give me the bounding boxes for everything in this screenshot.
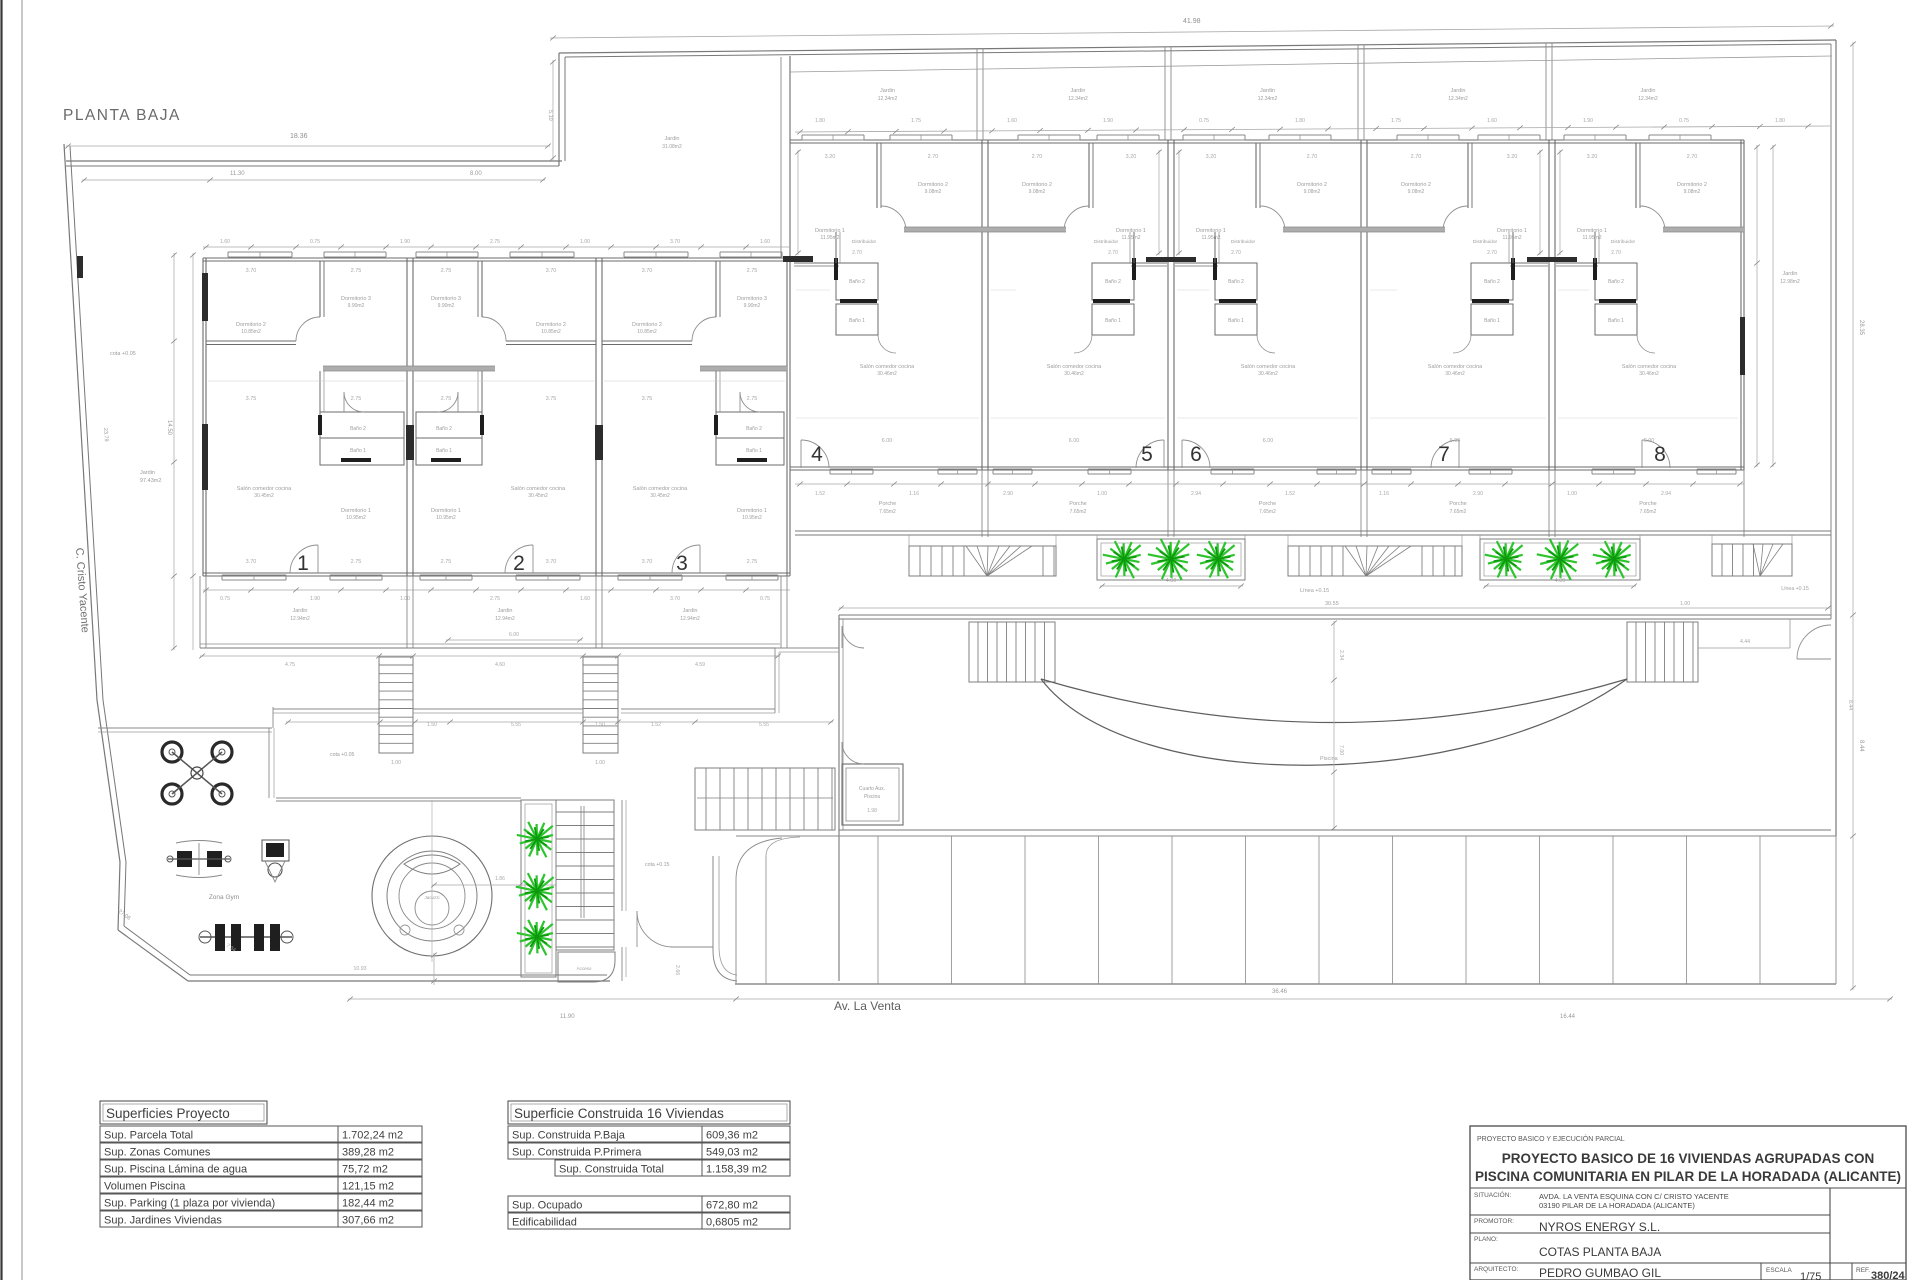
svg-text:Dormitorio 1: Dormitorio 1 (815, 228, 845, 234)
svg-text:3.70: 3.70 (670, 239, 680, 245)
svg-text:31.08m2: 31.08m2 (662, 144, 682, 150)
svg-text:Salón comedor cocina: Salón comedor cocina (1241, 364, 1296, 370)
svg-text:2.70: 2.70 (1411, 154, 1422, 160)
svg-text:Porche: Porche (1639, 501, 1656, 507)
svg-text:1.00: 1.00 (1567, 491, 1577, 497)
svg-text:9.08m2: 9.08m2 (1684, 189, 1701, 195)
svg-text:Distribuidor: Distribuidor (1231, 239, 1256, 245)
svg-text:1.80: 1.80 (1775, 118, 1785, 124)
svg-text:16.44: 16.44 (1560, 1014, 1576, 1020)
svg-text:10.85m2: 10.85m2 (637, 329, 657, 335)
svg-text:12.34m2: 12.34m2 (1638, 96, 1658, 102)
svg-text:97.43m2: 97.43m2 (140, 478, 161, 484)
svg-text:Dormitorio 1: Dormitorio 1 (1116, 228, 1146, 234)
svg-text:1.60: 1.60 (760, 239, 770, 245)
svg-text:1.52: 1.52 (651, 722, 661, 728)
svg-text:2.70: 2.70 (1108, 250, 1118, 256)
svg-text:0,6805 m2: 0,6805 m2 (706, 1217, 758, 1229)
svg-text:Baño 1: Baño 1 (350, 448, 366, 454)
svg-text:0.75: 0.75 (1199, 118, 1209, 124)
svg-text:3.75: 3.75 (546, 396, 557, 402)
svg-text:2.90: 2.90 (1003, 491, 1013, 497)
svg-text:cota +0.15: cota +0.15 (645, 862, 669, 868)
svg-text:4: 4 (811, 443, 823, 466)
svg-text:Salón comedor cocina: Salón comedor cocina (1622, 364, 1677, 370)
svg-text:12.94m2: 12.94m2 (680, 616, 700, 622)
svg-text:Jardin: Jardin (1451, 88, 1466, 94)
svg-text:1/75: 1/75 (1800, 1271, 1821, 1280)
svg-text:9.90m2: 9.90m2 (348, 303, 365, 309)
svg-text:10.85m2: 10.85m2 (241, 329, 261, 335)
svg-text:Av. La Venta: Av. La Venta (834, 999, 901, 1013)
svg-text:Salón comedor cocina: Salón comedor cocina (860, 364, 915, 370)
svg-text:1.80: 1.80 (1295, 118, 1305, 124)
svg-text:Jardin: Jardin (498, 608, 513, 614)
svg-text:2.75: 2.75 (441, 268, 452, 274)
svg-text:Distribuidor: Distribuidor (1094, 239, 1119, 245)
svg-text:2.70: 2.70 (1487, 250, 1497, 256)
svg-text:4.80: 4.80 (1166, 578, 1177, 584)
svg-text:Jacuzzi: Jacuzzi (424, 895, 439, 900)
svg-text:3.20: 3.20 (1507, 154, 1518, 160)
svg-text:Jardin: Jardin (1783, 271, 1798, 277)
svg-text:0.75: 0.75 (760, 596, 770, 602)
svg-text:ESCALA: ESCALA (1766, 1267, 1792, 1274)
svg-text:1.90: 1.90 (1103, 118, 1113, 124)
svg-text:Sup. Zonas Comunes: Sup. Zonas Comunes (104, 1147, 211, 1159)
svg-text:3.70: 3.70 (246, 268, 257, 274)
svg-text:9.08m2: 9.08m2 (1029, 189, 1046, 195)
svg-text:2.75: 2.75 (747, 396, 758, 402)
svg-text:30.55: 30.55 (1325, 601, 1339, 607)
svg-text:23.79: 23.79 (102, 428, 109, 442)
svg-text:Dormitorio 3: Dormitorio 3 (431, 296, 461, 302)
svg-text:4.75: 4.75 (285, 662, 295, 668)
svg-text:Porche: Porche (1069, 501, 1086, 507)
svg-text:1.90: 1.90 (310, 596, 320, 602)
svg-text:1.60: 1.60 (580, 596, 590, 602)
svg-text:Cuarto Aux.: Cuarto Aux. (859, 786, 885, 792)
svg-text:30.45m2: 30.45m2 (254, 493, 274, 499)
svg-text:Baño 1: Baño 1 (1105, 318, 1121, 324)
svg-text:Sup. Jardines Viviendas: Sup. Jardines Viviendas (104, 1215, 222, 1227)
svg-text:1.158,39 m2: 1.158,39 m2 (706, 1164, 767, 1176)
svg-text:ARQUITECTO:: ARQUITECTO: (1474, 1266, 1518, 1273)
svg-text:11.95m2: 11.95m2 (1121, 235, 1140, 241)
svg-text:2.70: 2.70 (1307, 154, 1318, 160)
svg-text:Sup. Piscina Lámina de agua: Sup. Piscina Lámina de agua (104, 1164, 248, 1176)
svg-text:03190 PILAR DE LA HORADADA (AL: 03190 PILAR DE LA HORADADA (ALICANTE) (1539, 1201, 1695, 1210)
svg-text:3.20: 3.20 (1126, 154, 1137, 160)
svg-text:Distribuidor: Distribuidor (1611, 239, 1636, 245)
svg-text:549,03 m2: 549,03 m2 (706, 1147, 758, 1159)
svg-text:30.45m2: 30.45m2 (528, 493, 548, 499)
svg-text:4.59: 4.59 (695, 662, 705, 668)
svg-text:6.00: 6.00 (509, 632, 519, 638)
svg-text:Zona Gym: Zona Gym (209, 894, 239, 901)
svg-text:PLANO:: PLANO: (1474, 1236, 1498, 1243)
svg-text:12.34m2: 12.34m2 (1448, 96, 1468, 102)
svg-text:7: 7 (1438, 443, 1450, 466)
svg-text:Dormitorio 1: Dormitorio 1 (1497, 228, 1527, 234)
svg-text:COTAS PLANTA BAJA: COTAS PLANTA BAJA (1539, 1245, 1661, 1259)
svg-text:121,15 m2: 121,15 m2 (342, 1181, 394, 1193)
svg-text:2.75: 2.75 (747, 268, 758, 274)
svg-text:30.46m2: 30.46m2 (1258, 371, 1278, 377)
svg-text:1.00: 1.00 (1097, 491, 1107, 497)
svg-text:36.46: 36.46 (1272, 989, 1288, 995)
svg-text:2.75: 2.75 (351, 268, 362, 274)
svg-text:Edificabilidad: Edificabilidad (512, 1217, 577, 1229)
svg-text:2.75: 2.75 (351, 559, 362, 565)
svg-text:Baño 2: Baño 2 (1105, 279, 1121, 285)
svg-text:1.00: 1.00 (580, 239, 590, 245)
svg-text:8: 8 (1654, 443, 1666, 466)
svg-text:REF.: REF. (1856, 1267, 1870, 1274)
svg-text:6.00: 6.00 (1069, 438, 1080, 444)
svg-text:3.75: 3.75 (246, 396, 257, 402)
svg-text:7.65m2: 7.65m2 (1070, 509, 1087, 515)
svg-text:6.00: 6.00 (1263, 438, 1274, 444)
svg-text:10.93: 10.93 (354, 966, 367, 972)
svg-text:Dormitorio 2: Dormitorio 2 (632, 322, 662, 328)
svg-text:2.75: 2.75 (441, 559, 452, 565)
svg-text:1.60: 1.60 (1007, 118, 1017, 124)
svg-text:Jardin: Jardin (683, 608, 698, 614)
svg-text:11.95m2: 11.95m2 (1582, 235, 1601, 241)
svg-text:Dormitorio 2: Dormitorio 2 (1022, 182, 1052, 188)
svg-text:8.44: 8.44 (1847, 700, 1853, 710)
svg-text:Dormitorio 1: Dormitorio 1 (1196, 228, 1226, 234)
svg-text:2.70: 2.70 (1611, 250, 1621, 256)
svg-text:8.44: 8.44 (1858, 740, 1864, 752)
svg-text:2.75: 2.75 (747, 559, 758, 565)
svg-text:1.00: 1.00 (1680, 601, 1690, 607)
svg-text:2.75: 2.75 (351, 396, 362, 402)
svg-text:1.75: 1.75 (911, 118, 921, 124)
svg-text:Dormitorio 2: Dormitorio 2 (1677, 182, 1707, 188)
svg-text:8.00: 8.00 (470, 171, 482, 177)
svg-text:Piscina: Piscina (864, 794, 880, 800)
svg-text:Salón comedor cocina: Salón comedor cocina (511, 486, 566, 492)
svg-text:Salón comedor cocina: Salón comedor cocina (1428, 364, 1483, 370)
svg-text:0.75: 0.75 (220, 596, 230, 602)
svg-text:Salón comedor cocina: Salón comedor cocina (1047, 364, 1102, 370)
svg-text:Baño 1: Baño 1 (849, 318, 865, 324)
svg-text:Dormitorio 1: Dormitorio 1 (1577, 228, 1607, 234)
svg-text:2.75: 2.75 (441, 396, 452, 402)
svg-text:307,66 m2: 307,66 m2 (342, 1215, 394, 1227)
svg-text:1.80: 1.80 (815, 118, 825, 124)
svg-text:12.94m2: 12.94m2 (495, 616, 515, 622)
svg-text:1.98: 1.98 (867, 808, 877, 814)
svg-text:12.98m2: 12.98m2 (1780, 279, 1800, 285)
svg-text:12.94m2: 12.94m2 (290, 616, 310, 622)
svg-text:28.35: 28.35 (1858, 320, 1864, 336)
svg-text:Porche: Porche (879, 501, 896, 507)
svg-text:3: 3 (676, 552, 688, 575)
svg-text:1.90: 1.90 (400, 239, 410, 245)
svg-text:12.34m2: 12.34m2 (878, 96, 898, 102)
svg-text:SITUACIÓN:: SITUACIÓN: (1474, 1190, 1511, 1199)
svg-text:Sup. Parcela Total: Sup. Parcela Total (104, 1130, 193, 1142)
svg-text:3.20: 3.20 (825, 154, 836, 160)
svg-text:Jardin: Jardin (293, 608, 308, 614)
svg-text:182,44 m2: 182,44 m2 (342, 1198, 394, 1210)
svg-text:6.00: 6.00 (882, 438, 893, 444)
svg-text:14.50: 14.50 (166, 420, 172, 436)
svg-text:12.34m2: 12.34m2 (1068, 96, 1088, 102)
svg-text:9.08m2: 9.08m2 (1304, 189, 1321, 195)
svg-text:Baño 2: Baño 2 (746, 426, 762, 432)
svg-text:Dormitorio 3: Dormitorio 3 (737, 296, 767, 302)
svg-text:Porche: Porche (1449, 501, 1466, 507)
svg-text:AVDA. LA VENTA ESQUINA CON C/: AVDA. LA VENTA ESQUINA CON C/ CRISTO YAC… (1539, 1192, 1729, 1201)
svg-text:PROYECTO BASICO DE 16 VIVIENDA: PROYECTO BASICO DE 16 VIVIENDAS AGRUPADA… (1502, 1151, 1875, 1166)
svg-text:Dormitorio 2: Dormitorio 2 (918, 182, 948, 188)
svg-text:2: 2 (513, 552, 525, 575)
svg-text:cota +0.05: cota +0.05 (330, 752, 354, 758)
svg-text:1.60: 1.60 (1487, 118, 1497, 124)
svg-text:2.70: 2.70 (1032, 154, 1043, 160)
svg-text:41.98: 41.98 (1183, 18, 1201, 25)
svg-text:9.08m2: 9.08m2 (1408, 189, 1425, 195)
svg-text:1.52: 1.52 (1285, 491, 1295, 497)
svg-text:Dormitorio 2: Dormitorio 2 (536, 322, 566, 328)
svg-text:1.00: 1.00 (391, 760, 401, 766)
svg-text:30.45m2: 30.45m2 (650, 493, 670, 499)
svg-text:2.70: 2.70 (1687, 154, 1698, 160)
svg-text:3.70: 3.70 (670, 596, 680, 602)
svg-text:1.702,24 m2: 1.702,24 m2 (342, 1130, 403, 1142)
svg-text:11.95m2: 11.95m2 (1502, 235, 1521, 241)
svg-text:2.75: 2.75 (490, 239, 500, 245)
svg-text:10.85m2: 10.85m2 (541, 329, 561, 335)
svg-text:Dormitorio 1: Dormitorio 1 (431, 508, 461, 514)
svg-text:10.95m2: 10.95m2 (346, 515, 366, 521)
svg-text:1.52: 1.52 (815, 491, 825, 497)
svg-text:1.00: 1.00 (400, 596, 410, 602)
svg-text:389,28 m2: 389,28 m2 (342, 1147, 394, 1159)
svg-text:Baño 1: Baño 1 (1228, 318, 1244, 324)
svg-text:0.75: 0.75 (310, 239, 320, 245)
svg-text:380/24: 380/24 (1871, 1270, 1906, 1280)
svg-text:10.95m2: 10.95m2 (742, 515, 762, 521)
svg-text:10.95m2: 10.95m2 (436, 515, 456, 521)
svg-text:PLANTA BAJA: PLANTA BAJA (63, 107, 181, 124)
svg-text:7.65m2: 7.65m2 (1640, 509, 1657, 515)
svg-text:Dormitorio 1: Dormitorio 1 (341, 508, 371, 514)
svg-text:4.60: 4.60 (495, 662, 505, 668)
svg-text:Línea +0.15: Línea +0.15 (1300, 588, 1329, 594)
svg-text:2.66: 2.66 (674, 965, 680, 975)
svg-text:Acceso: Acceso (577, 966, 592, 971)
svg-text:5.10: 5.10 (547, 110, 553, 121)
svg-text:Línea +0.15: Línea +0.15 (1781, 586, 1809, 592)
svg-text:Distribuidor: Distribuidor (1473, 239, 1498, 245)
svg-text:Dormitorio 2: Dormitorio 2 (236, 322, 266, 328)
svg-text:3.70: 3.70 (546, 268, 557, 274)
svg-text:11.90: 11.90 (560, 1014, 575, 1020)
svg-text:3.70: 3.70 (642, 268, 653, 274)
svg-text:Baño 1: Baño 1 (746, 448, 762, 454)
svg-text:4.44: 4.44 (1740, 639, 1750, 645)
svg-text:30.46m2: 30.46m2 (877, 371, 897, 377)
svg-text:7.00: 7.00 (1338, 745, 1344, 755)
svg-text:cota +0.05: cota +0.05 (110, 351, 136, 357)
svg-text:4.80: 4.80 (1555, 578, 1566, 584)
svg-text:Baño 2: Baño 2 (1228, 279, 1244, 285)
svg-text:Piscina: Piscina (1320, 756, 1339, 762)
svg-text:5.55: 5.55 (511, 722, 521, 728)
svg-text:Baño 1: Baño 1 (1484, 318, 1500, 324)
svg-text:Superficie Construida 16 Vi: Superficie Construida 16 Viviendas (514, 1106, 724, 1121)
svg-text:Baño 2: Baño 2 (849, 279, 865, 285)
svg-text:Dormitorio 3: Dormitorio 3 (341, 296, 371, 302)
svg-text:3.75: 3.75 (642, 396, 653, 402)
svg-text:Sup. Ocupado: Sup. Ocupado (512, 1200, 582, 1212)
svg-text:PROMOTOR:: PROMOTOR: (1474, 1218, 1514, 1225)
svg-text:2.90: 2.90 (1473, 491, 1483, 497)
svg-text:11.30: 11.30 (230, 171, 245, 177)
svg-text:12.34m2: 12.34m2 (1258, 96, 1278, 102)
svg-text:Distribuidor: Distribuidor (852, 239, 877, 245)
svg-text:Jardin: Jardin (880, 88, 895, 94)
svg-text:3.70: 3.70 (246, 559, 257, 565)
svg-text:Baño 1: Baño 1 (1608, 318, 1624, 324)
svg-text:2.75: 2.75 (490, 596, 500, 602)
svg-text:Superficies Proyecto: Superficies Proyecto (106, 1106, 230, 1121)
svg-text:Porche: Porche (1259, 501, 1276, 507)
svg-text:7.65m2: 7.65m2 (1259, 509, 1276, 515)
svg-text:PROYECTO BASICO Y EJECUCIÓN P: PROYECTO BASICO Y EJECUCIÓN PARCIAL (1477, 1134, 1625, 1143)
svg-text:Baño 2: Baño 2 (1484, 279, 1500, 285)
svg-text:75,72 m2: 75,72 m2 (342, 1164, 388, 1176)
svg-text:Sup. Parking (1 plaza por vivi: Sup. Parking (1 plaza por vivienda) (104, 1198, 275, 1210)
svg-text:Baño 2: Baño 2 (436, 426, 452, 432)
svg-text:PISCINA COMUNITARIA EN PILAR D: PISCINA COMUNITARIA EN PILAR DE LA HORAD… (1475, 1169, 1901, 1184)
svg-text:Jardin: Jardin (1071, 88, 1086, 94)
svg-text:Dormitorio 2: Dormitorio 2 (1401, 182, 1431, 188)
svg-text:609,36 m2: 609,36 m2 (706, 1130, 758, 1142)
svg-text:9.90m2: 9.90m2 (438, 303, 455, 309)
svg-text:5.55: 5.55 (759, 722, 769, 728)
svg-text:2.94: 2.94 (1191, 491, 1201, 497)
svg-text:2.70: 2.70 (852, 250, 862, 256)
svg-text:7.65m2: 7.65m2 (1450, 509, 1467, 515)
svg-text:30.46m2: 30.46m2 (1445, 371, 1465, 377)
svg-text:Salón comedor cocina: Salón comedor cocina (633, 486, 688, 492)
svg-text:2.70: 2.70 (1231, 250, 1241, 256)
svg-text:3.20: 3.20 (1587, 154, 1598, 160)
svg-text:Baño 1: Baño 1 (436, 448, 452, 454)
svg-text:6: 6 (1190, 443, 1202, 466)
svg-text:PEDRO GUMBAO GIL: PEDRO GUMBAO GIL (1539, 1266, 1661, 1280)
svg-text:Dormitorio 2: Dormitorio 2 (1297, 182, 1327, 188)
svg-text:18.36: 18.36 (290, 133, 308, 140)
svg-text:6.00: 6.00 (1450, 438, 1461, 444)
svg-text:2.34: 2.34 (1338, 650, 1344, 660)
svg-text:Volumen Piscina: Volumen Piscina (104, 1181, 186, 1193)
svg-text:672,80 m2: 672,80 m2 (706, 1200, 758, 1212)
svg-text:Sup. Construida Total: Sup. Construida Total (559, 1164, 664, 1176)
svg-text:1.75: 1.75 (1391, 118, 1401, 124)
svg-text:3.20: 3.20 (1206, 154, 1217, 160)
svg-text:5: 5 (1141, 443, 1153, 466)
svg-text:1.16: 1.16 (1379, 491, 1389, 497)
svg-text:1.16: 1.16 (909, 491, 919, 497)
svg-text:Salón comedor cocina: Salón comedor cocina (237, 486, 292, 492)
svg-text:1.50: 1.50 (595, 722, 605, 728)
svg-text:11.95m2: 11.95m2 (820, 235, 839, 241)
svg-text:Dormitorio 1: Dormitorio 1 (737, 508, 767, 514)
svg-text:7.65m2: 7.65m2 (879, 509, 896, 515)
svg-text:1.00: 1.00 (595, 760, 605, 766)
svg-text:3.70: 3.70 (546, 559, 557, 565)
svg-text:Jardin: Jardin (140, 470, 155, 476)
svg-text:30.46m2: 30.46m2 (1639, 371, 1659, 377)
svg-text:Jardin: Jardin (665, 136, 680, 142)
svg-text:6.00: 6.00 (1644, 438, 1655, 444)
svg-text:9.08m2: 9.08m2 (925, 189, 942, 195)
svg-text:1.50: 1.50 (427, 722, 437, 728)
svg-text:0.75: 0.75 (1679, 118, 1689, 124)
svg-text:Jardin: Jardin (1641, 88, 1656, 94)
svg-text:Baño 2: Baño 2 (1608, 279, 1624, 285)
svg-text:1.86: 1.86 (495, 876, 505, 882)
svg-text:Baño 2: Baño 2 (350, 426, 366, 432)
svg-text:Sup. Construida P.Primera: Sup. Construida P.Primera (512, 1147, 642, 1159)
svg-text:NYROS ENERGY S.L.: NYROS ENERGY S.L. (1539, 1220, 1660, 1234)
svg-text:30.46m2: 30.46m2 (1064, 371, 1084, 377)
svg-text:2.70: 2.70 (928, 154, 939, 160)
svg-text:1: 1 (297, 552, 309, 575)
svg-text:Sup. Construida P.Baja: Sup. Construida P.Baja (512, 1130, 626, 1142)
svg-text:1.60: 1.60 (220, 239, 230, 245)
svg-text:1.90: 1.90 (1583, 118, 1593, 124)
svg-text:9.90m2: 9.90m2 (744, 303, 761, 309)
svg-text:11.95m2: 11.95m2 (1201, 235, 1220, 241)
svg-text:3.70: 3.70 (642, 559, 653, 565)
svg-text:Jardin: Jardin (1260, 88, 1275, 94)
svg-text:2.94: 2.94 (1661, 491, 1671, 497)
